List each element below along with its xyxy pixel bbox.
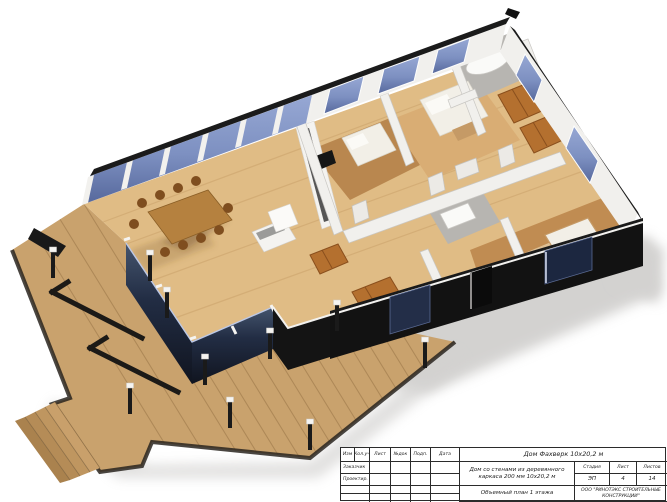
row-zakazchik: Заказчик [341,462,370,474]
doc-title: Дом со стенами из деревянного каркаса 20… [460,462,575,486]
sheet-value: 4 [610,474,637,486]
rev-col-data: Дата [431,448,460,462]
rev-col-podp: Подп. [411,448,431,462]
company-name: ООО "РИНОТЭКС СТРОИТЕЛЬНЫЕ КОНСТРУКЦИИ" [575,486,667,502]
floor-plan-render [0,0,667,502]
object-name: Дом Фахверк 10х20,2 м [460,448,667,462]
stage-label: Стадия [575,462,610,474]
title-block: Изм Кол.уч Лист №док Подп. Дата Дом Фахв… [340,447,666,501]
rev-col-koluch: Кол.уч [355,448,370,462]
sheets-label: Листов [637,462,667,474]
rev-col-ndok: №док [391,448,411,462]
stage-value: ЭП [575,474,610,486]
rev-col-izm: Изм [341,448,355,462]
sheets-value: 14 [637,474,667,486]
row-proektir: Проектир. [341,474,370,486]
sheet-title: Объемный план 1 этажа [460,486,575,502]
rev-col-list: Лист [370,448,391,462]
sheet-label: Лист [610,462,637,474]
roof-stub [505,8,520,19]
front-door [470,266,492,310]
drawing-sheet: { "palette": { "background": "#ffffff", … [0,0,667,502]
